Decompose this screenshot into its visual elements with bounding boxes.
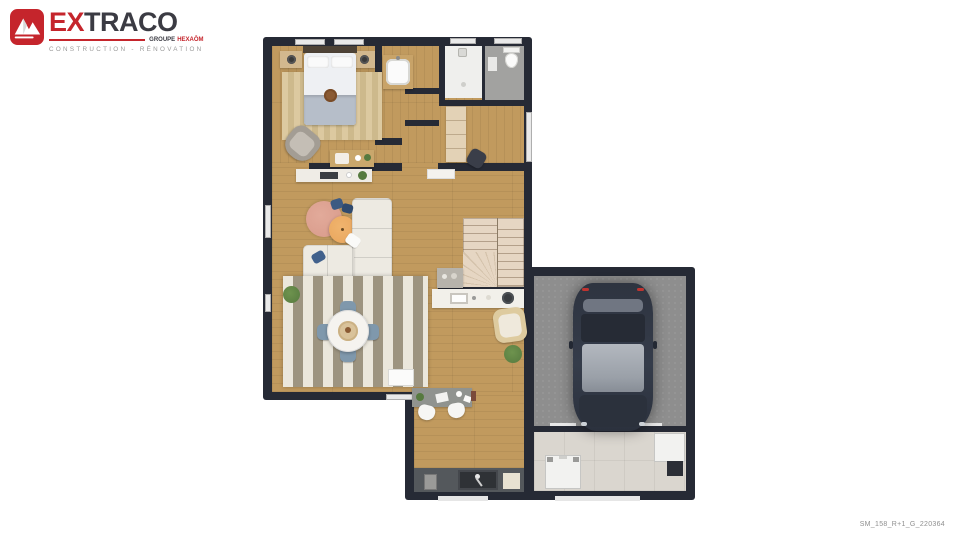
lamp-icon: [360, 55, 369, 64]
plant-icon: [416, 393, 424, 401]
bedroom-window-1: [295, 39, 325, 45]
rattan-armchair: [492, 306, 528, 344]
utility-cabinet: [654, 433, 685, 462]
closet-window-right: [526, 112, 532, 162]
stair-rail: [497, 218, 498, 287]
car-headlight: [581, 422, 587, 426]
sink-basin: [386, 59, 410, 85]
tray: [335, 153, 349, 164]
hall-shower-wall: [439, 46, 445, 103]
decor-dot: [486, 295, 491, 300]
decor-dot: [355, 155, 361, 161]
island-sink: [450, 293, 468, 304]
kitchen-sink: [458, 470, 498, 490]
wc-window: [494, 38, 522, 44]
plant-icon: [358, 171, 367, 180]
double-bed: [304, 53, 356, 125]
garage-utility-door-1: [550, 423, 576, 426]
stair-winder-treads: [463, 252, 497, 287]
staircase: [463, 218, 524, 287]
living-window-left: [265, 205, 271, 238]
tv-icon: [320, 172, 338, 179]
car-headlight: [639, 422, 645, 426]
laptop-icon: [435, 392, 449, 403]
decor-dot: [345, 327, 351, 333]
car-hood: [579, 395, 647, 427]
car-rear-window: [583, 299, 643, 312]
lamp-icon: [287, 55, 296, 64]
decor-dot: [346, 172, 352, 178]
faucet-arm-icon: [475, 477, 482, 486]
utility-dark-box: [667, 461, 683, 476]
dining-plant: [283, 286, 300, 303]
doormat: [388, 369, 414, 386]
plan-reference-code: SM_158_R+1_G_220364: [860, 521, 945, 528]
side-cabinet: [437, 268, 463, 288]
decor-dot: [442, 274, 447, 279]
car-taillight: [637, 288, 644, 291]
corner-plant: [504, 345, 522, 363]
car: [573, 283, 653, 431]
car-windshield: [582, 344, 644, 392]
desk-side-item: [471, 391, 476, 401]
wc-mat: [488, 57, 497, 71]
bedroom-bench: [330, 150, 374, 167]
garage-door-threshold: [555, 496, 640, 501]
bed-cushion: [324, 89, 337, 102]
kitchen-island: [432, 289, 524, 308]
stair-flight-left: [463, 218, 497, 252]
shower-head-icon: [458, 48, 467, 57]
faucet-icon: [396, 56, 400, 60]
island-faucet-icon: [472, 296, 476, 300]
pouf-button: [341, 228, 344, 231]
hall-nib-lower: [405, 120, 439, 126]
desk-lamp-icon: [456, 391, 462, 397]
page: EXTRACO GROUPE HEXAŌM CONSTRUCTION - RÉN…: [0, 0, 960, 540]
bedroom-window-2: [334, 39, 364, 45]
car-mirror: [569, 341, 573, 349]
dining-window-left: [265, 294, 271, 312]
console-table: [427, 169, 455, 179]
shower-drain-icon: [461, 82, 466, 87]
bathroom-vanity: [383, 55, 413, 89]
wc-floor: [484, 46, 524, 100]
car-taillight: [582, 288, 589, 291]
bed-headboard: [303, 46, 357, 53]
cooktop-icon: [502, 292, 514, 304]
decor-dot: [451, 273, 457, 279]
floor-plan: [0, 0, 960, 540]
washer-hinge: [547, 457, 553, 462]
wardrobe: [446, 106, 466, 162]
car-mirror: [653, 341, 657, 349]
cutting-board-icon: [503, 473, 520, 489]
washer-top-line: [559, 456, 567, 459]
kitchen-counter: [414, 468, 524, 492]
nightstand-left: [280, 51, 302, 68]
shower-window: [450, 38, 476, 44]
armchair-cushion: [498, 313, 523, 339]
shower-wc-wall: [482, 46, 485, 100]
plant-icon: [364, 154, 371, 161]
pillow: [331, 56, 353, 68]
washer-hinge: [573, 457, 579, 462]
washing-machine: [545, 455, 581, 489]
sideboard: [296, 169, 372, 182]
coffee-machine-icon: [424, 474, 437, 490]
entry-step: [438, 496, 488, 501]
dining-table: [327, 310, 369, 352]
car-roof: [581, 314, 645, 342]
nightstand-right: [354, 51, 375, 68]
pillow: [307, 56, 329, 68]
stair-flight-right: [498, 218, 524, 287]
armchair-cushion: [287, 129, 317, 158]
